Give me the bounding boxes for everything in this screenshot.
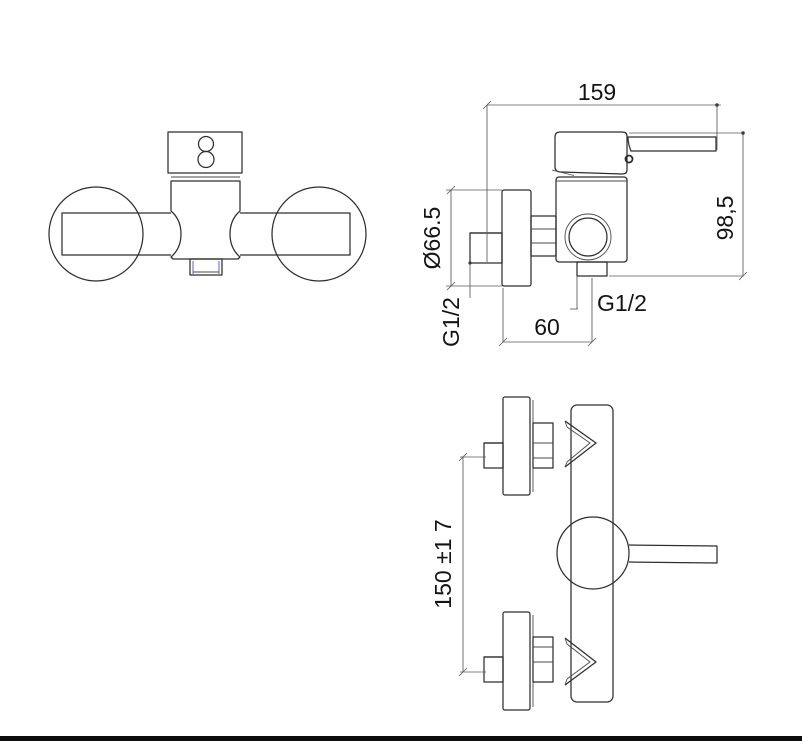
dim-height-label: 98,5 [712, 196, 738, 241]
outlet-plan [190, 259, 222, 275]
top-hex-nut [533, 423, 553, 468]
leader-inlet-dot [468, 261, 471, 264]
mixer-body-side [556, 177, 627, 262]
technical-drawing-page: 159 98,5 Ø66.5 G1/2 60 G1/2 [0, 0, 802, 746]
outlet-thread-label: G1/2 [597, 290, 647, 316]
page-footer-rule [0, 736, 802, 741]
lever-handle-side [628, 137, 716, 151]
top-wall-flange-front [503, 397, 530, 495]
inlet-connector-side [470, 233, 502, 263]
left-flange-circle [49, 187, 143, 281]
dim-flange-diameter-label: Ø66.5 [419, 207, 445, 270]
bottom-eccentric-union [565, 638, 596, 685]
bottom-hex-nut [533, 637, 553, 682]
mixer-body-plan [171, 181, 240, 259]
bottom-wall-flange-front [503, 612, 530, 710]
top-inlet-connector [484, 443, 503, 468]
side-view: 159 98,5 Ø66.5 G1/2 60 G1/2 [419, 79, 747, 347]
faucet-technical-drawing: 159 98,5 Ø66.5 G1/2 60 G1/2 [0, 0, 802, 746]
cap-indicator-circle-bottom [198, 152, 214, 168]
connection-circle-outer [565, 214, 611, 260]
valve-boss-circle [557, 517, 629, 589]
wall-flange-side [502, 190, 531, 286]
hex-nut-side [531, 216, 556, 256]
connection-circle-inner [569, 218, 607, 256]
dim-width-label: 159 [578, 79, 616, 105]
dim-wall-to-outlet-label: 60 [534, 314, 560, 340]
inlet-thread-label: G1/2 [438, 297, 464, 347]
top-view [49, 132, 366, 281]
right-flange-circle [272, 187, 366, 281]
cap-indicator-circle-top [199, 137, 214, 152]
right-arm [240, 213, 350, 255]
left-arm [62, 213, 171, 255]
dim-connection-spacing-label: 150 ±1 7 [430, 519, 456, 608]
bottom-inlet-connector [484, 657, 503, 682]
front-view: 150 ±1 7 [430, 397, 717, 710]
outlet-side [577, 262, 607, 276]
cartridge-cap-side [555, 132, 627, 174]
mixer-body-front [571, 405, 613, 702]
lever-handle-front [629, 545, 717, 563]
